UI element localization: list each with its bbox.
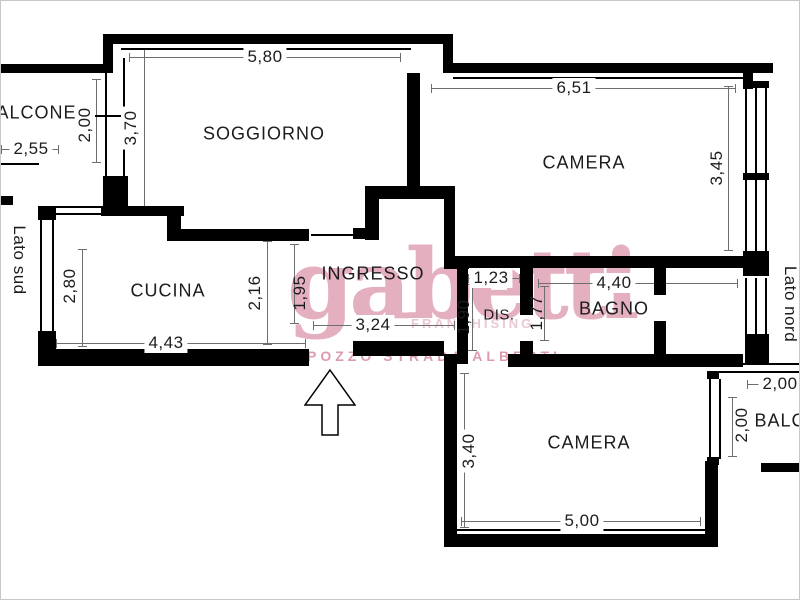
room-label-balcone-sud: BALCONE (0, 103, 77, 124)
window-glazing-line (105, 58, 107, 176)
dimension-line (144, 48, 145, 214)
wall-segment (38, 331, 56, 351)
dimension-line (267, 241, 268, 345)
wall-segment (444, 354, 457, 547)
balcony-rail-line (717, 371, 800, 373)
dim-camera-nord-width: 6,51 (552, 78, 595, 98)
dim-balcone-sud-depth: 2,00 (75, 103, 95, 146)
window-glazing-line (719, 379, 721, 459)
dim-cucina-height: 2,80 (60, 264, 80, 307)
dim-balcone-sud-width: 2,55 (9, 139, 52, 159)
dim-ingresso-height: 1,95 (290, 275, 310, 310)
wall-segment (1, 64, 111, 73)
room-label-ingresso: INGRESSO (321, 264, 424, 285)
dimension-line (728, 86, 729, 251)
dim-bagno-width: 4,40 (592, 273, 635, 293)
wall-segment (353, 341, 444, 356)
window-glazing-line (765, 88, 767, 251)
door-opening-line (311, 234, 353, 236)
window-jamb (743, 173, 769, 180)
dim-dis-width: 1,23 (469, 268, 512, 288)
dimension-line (82, 249, 83, 347)
dim-cucina-width: 4,43 (144, 333, 187, 353)
dim-camera-nord-height: 3,45 (707, 146, 727, 189)
dimension-line (538, 283, 738, 284)
dimension-line (96, 79, 97, 163)
wall-segment (407, 73, 420, 189)
window-jamb (743, 81, 769, 88)
window-glazing-line (56, 213, 101, 215)
wall-segment (761, 463, 800, 472)
window-glazing-line (52, 218, 54, 333)
dim-dis-height: 1,90 (454, 299, 474, 334)
entrance-arrow-icon (304, 369, 356, 437)
wall-segment (365, 199, 379, 240)
wall-segment (444, 534, 718, 547)
window-glazing-line (765, 278, 767, 334)
wall-segment (745, 334, 769, 364)
window-glazing-line (745, 278, 747, 334)
dim-soggiorno-width: 5,80 (243, 47, 286, 67)
dim-balcone-nord-depth: 2,00 (732, 407, 752, 442)
wall-segment (654, 321, 666, 356)
wall-segment (1, 196, 13, 205)
dim-bagno-height: 1,77 (527, 295, 547, 330)
room-label-balcone-nord: BALCONE (754, 411, 800, 432)
wall-segment (743, 251, 769, 276)
wall-segment (167, 229, 309, 241)
window-glazing-line (709, 379, 711, 459)
room-label-bagno: BAGNO (579, 299, 649, 320)
wall-segment (103, 34, 453, 44)
dim-camera-sud-width: 5,00 (560, 511, 603, 531)
room-label-camera-sud: CAMERA (547, 433, 630, 454)
room-label-soggiorno: SOGGIORNO (203, 124, 325, 145)
window-glazing-line (40, 218, 42, 333)
window-glazing-line (755, 278, 757, 334)
floor-plan-canvas: gabetti FRANCHISING POZZO STRADA ALBERTI (0, 0, 800, 600)
wall-inner-line (453, 77, 743, 79)
room-label-dis: DIS. (483, 307, 514, 324)
dim-ingresso-width: 3,24 (351, 315, 394, 335)
window-glazing-line (755, 88, 757, 251)
dim-soggiorno-height: 3,70 (121, 106, 141, 149)
side-label-lato-sud: Lato sud (9, 225, 29, 294)
dim-balcone-nord-width: 2,00 (758, 374, 800, 394)
wall-segment (520, 341, 533, 356)
wall-segment (453, 256, 745, 268)
window-glazing-line (745, 88, 747, 251)
room-label-cucina: CUCINA (130, 281, 205, 302)
dim-camera-sud-height: 3,40 (459, 429, 479, 472)
wall-segment (654, 265, 666, 295)
wall-segment (443, 63, 773, 73)
wall-segment (508, 354, 743, 367)
side-label-lato-nord: Lato nord (780, 266, 800, 342)
room-label-camera-nord: CAMERA (542, 153, 625, 174)
balcony-rail-line (1, 163, 39, 165)
window-glazing-line (56, 206, 101, 208)
window-jamb (707, 371, 719, 379)
dim-cucina-door-side: 2,16 (245, 271, 265, 314)
wall-segment (103, 176, 128, 216)
